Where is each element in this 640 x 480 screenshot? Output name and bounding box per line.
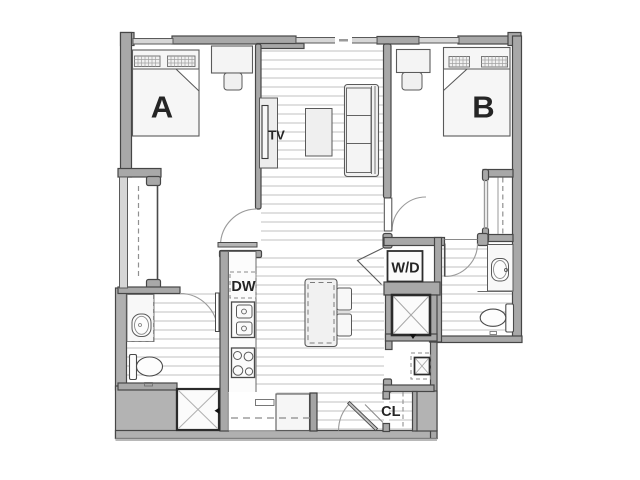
svg-text:CL: CL — [381, 404, 400, 420]
svg-text:TV: TV — [268, 128, 285, 143]
svg-text:A: A — [151, 90, 173, 125]
svg-text:DW: DW — [231, 279, 255, 295]
svg-text:B: B — [472, 90, 494, 125]
svg-text:W/D: W/D — [391, 261, 419, 277]
